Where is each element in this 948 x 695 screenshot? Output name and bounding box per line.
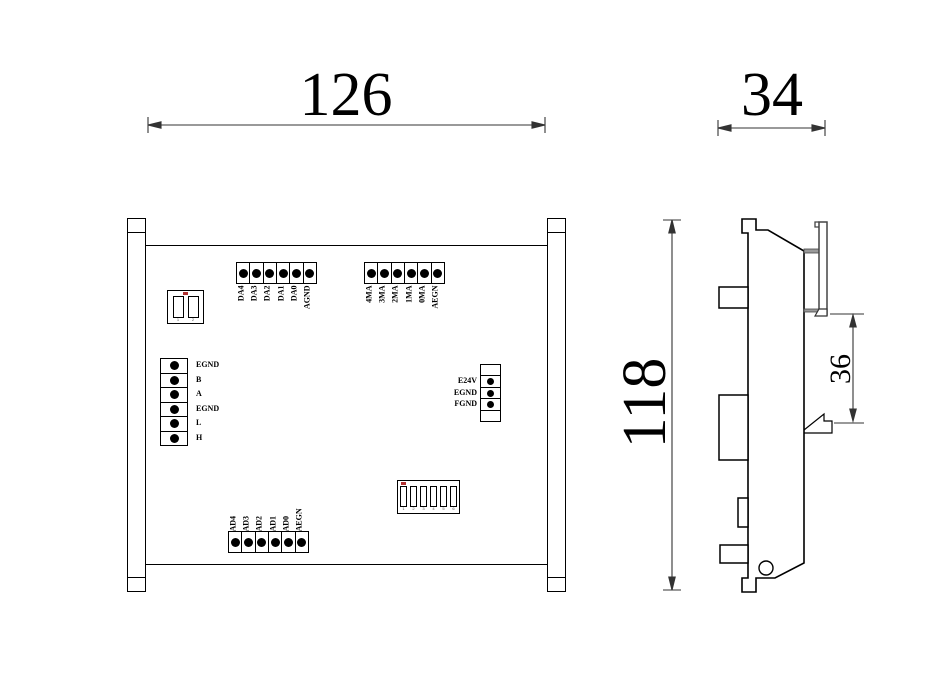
side-connector-block [720,545,748,563]
din-clip-tooth [804,414,832,433]
dim-line-34 [718,120,825,136]
din-rail-panel [819,222,827,315]
dim-line-118 [663,220,681,590]
din-rail-bottom-bar [804,309,819,312]
dim-line-36 [830,314,864,423]
side-mount-hole [759,561,773,575]
side-connector-block [719,287,748,308]
side-view-body-outline [742,219,804,592]
side-connector-block [719,395,748,460]
side-view-and-dimension-lines [0,0,948,695]
side-connector-block [738,498,748,527]
technical-drawing: 126 34 118 36 DA4 DA3 DA2 DA1 DA0 AGND 4… [0,0,948,695]
dim-line-126 [148,117,545,133]
din-rail-top-bar [804,249,820,253]
